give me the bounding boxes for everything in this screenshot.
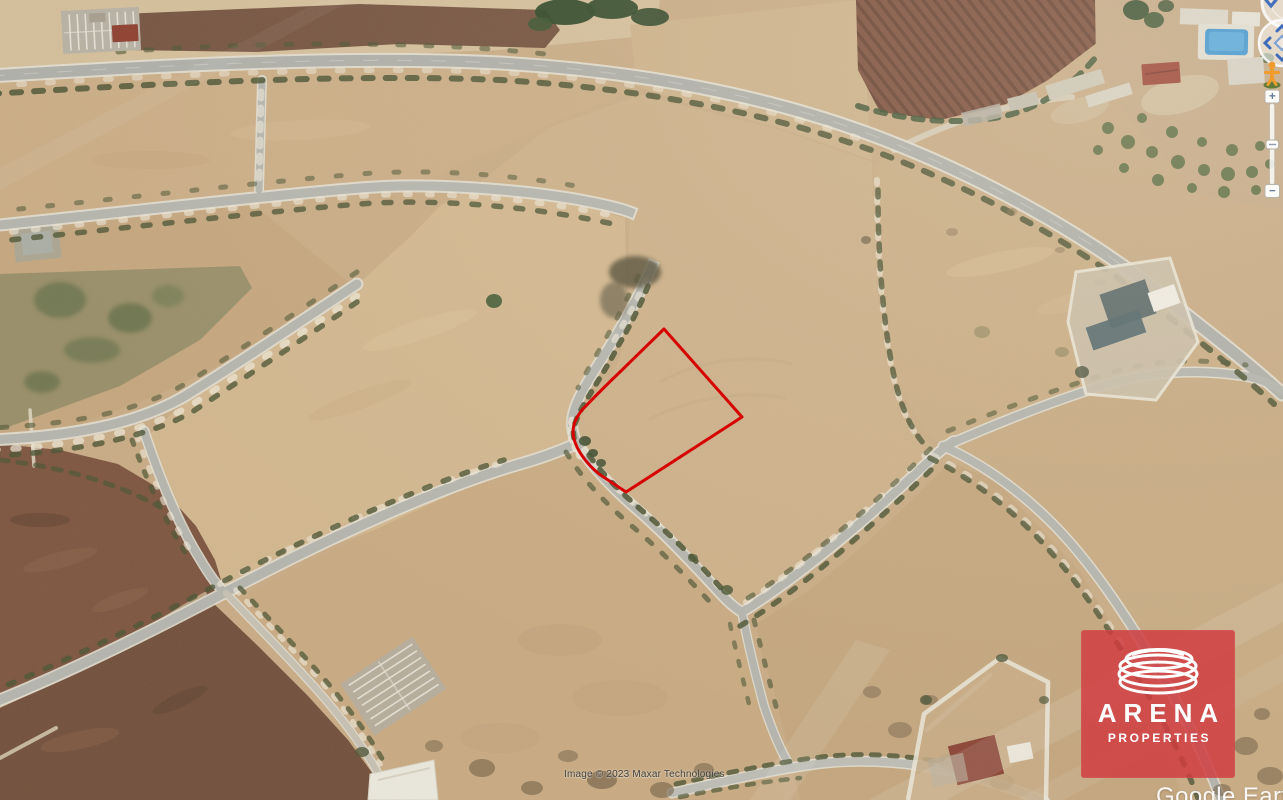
zoom-slider: + −	[1265, 90, 1280, 198]
svg-text:−: −	[1269, 186, 1276, 198]
google-earth-watermark: Google Earth	[1156, 783, 1283, 800]
arena-properties-watermark: ARENA PROPERTIES	[1081, 630, 1235, 778]
move-joystick[interactable]	[1259, 20, 1283, 66]
google-earth-viewport[interactable]: Image © 2023 Maxar Technologies Google E…	[0, 0, 1283, 800]
imagery-attribution: Image © 2023 Maxar Technologies	[564, 769, 725, 780]
zoom-out-button[interactable]: −	[1265, 185, 1280, 198]
svg-text:+: +	[1269, 91, 1276, 103]
navigation-controls: + −	[1250, 0, 1283, 230]
zoom-slider-handle[interactable]	[1266, 140, 1279, 149]
arena-rings-logo	[1102, 639, 1214, 697]
watermark-title: ARENA	[1081, 700, 1235, 726]
watermark-subtitle: PROPERTIES	[1081, 731, 1235, 745]
zoom-in-button[interactable]: +	[1265, 90, 1280, 103]
